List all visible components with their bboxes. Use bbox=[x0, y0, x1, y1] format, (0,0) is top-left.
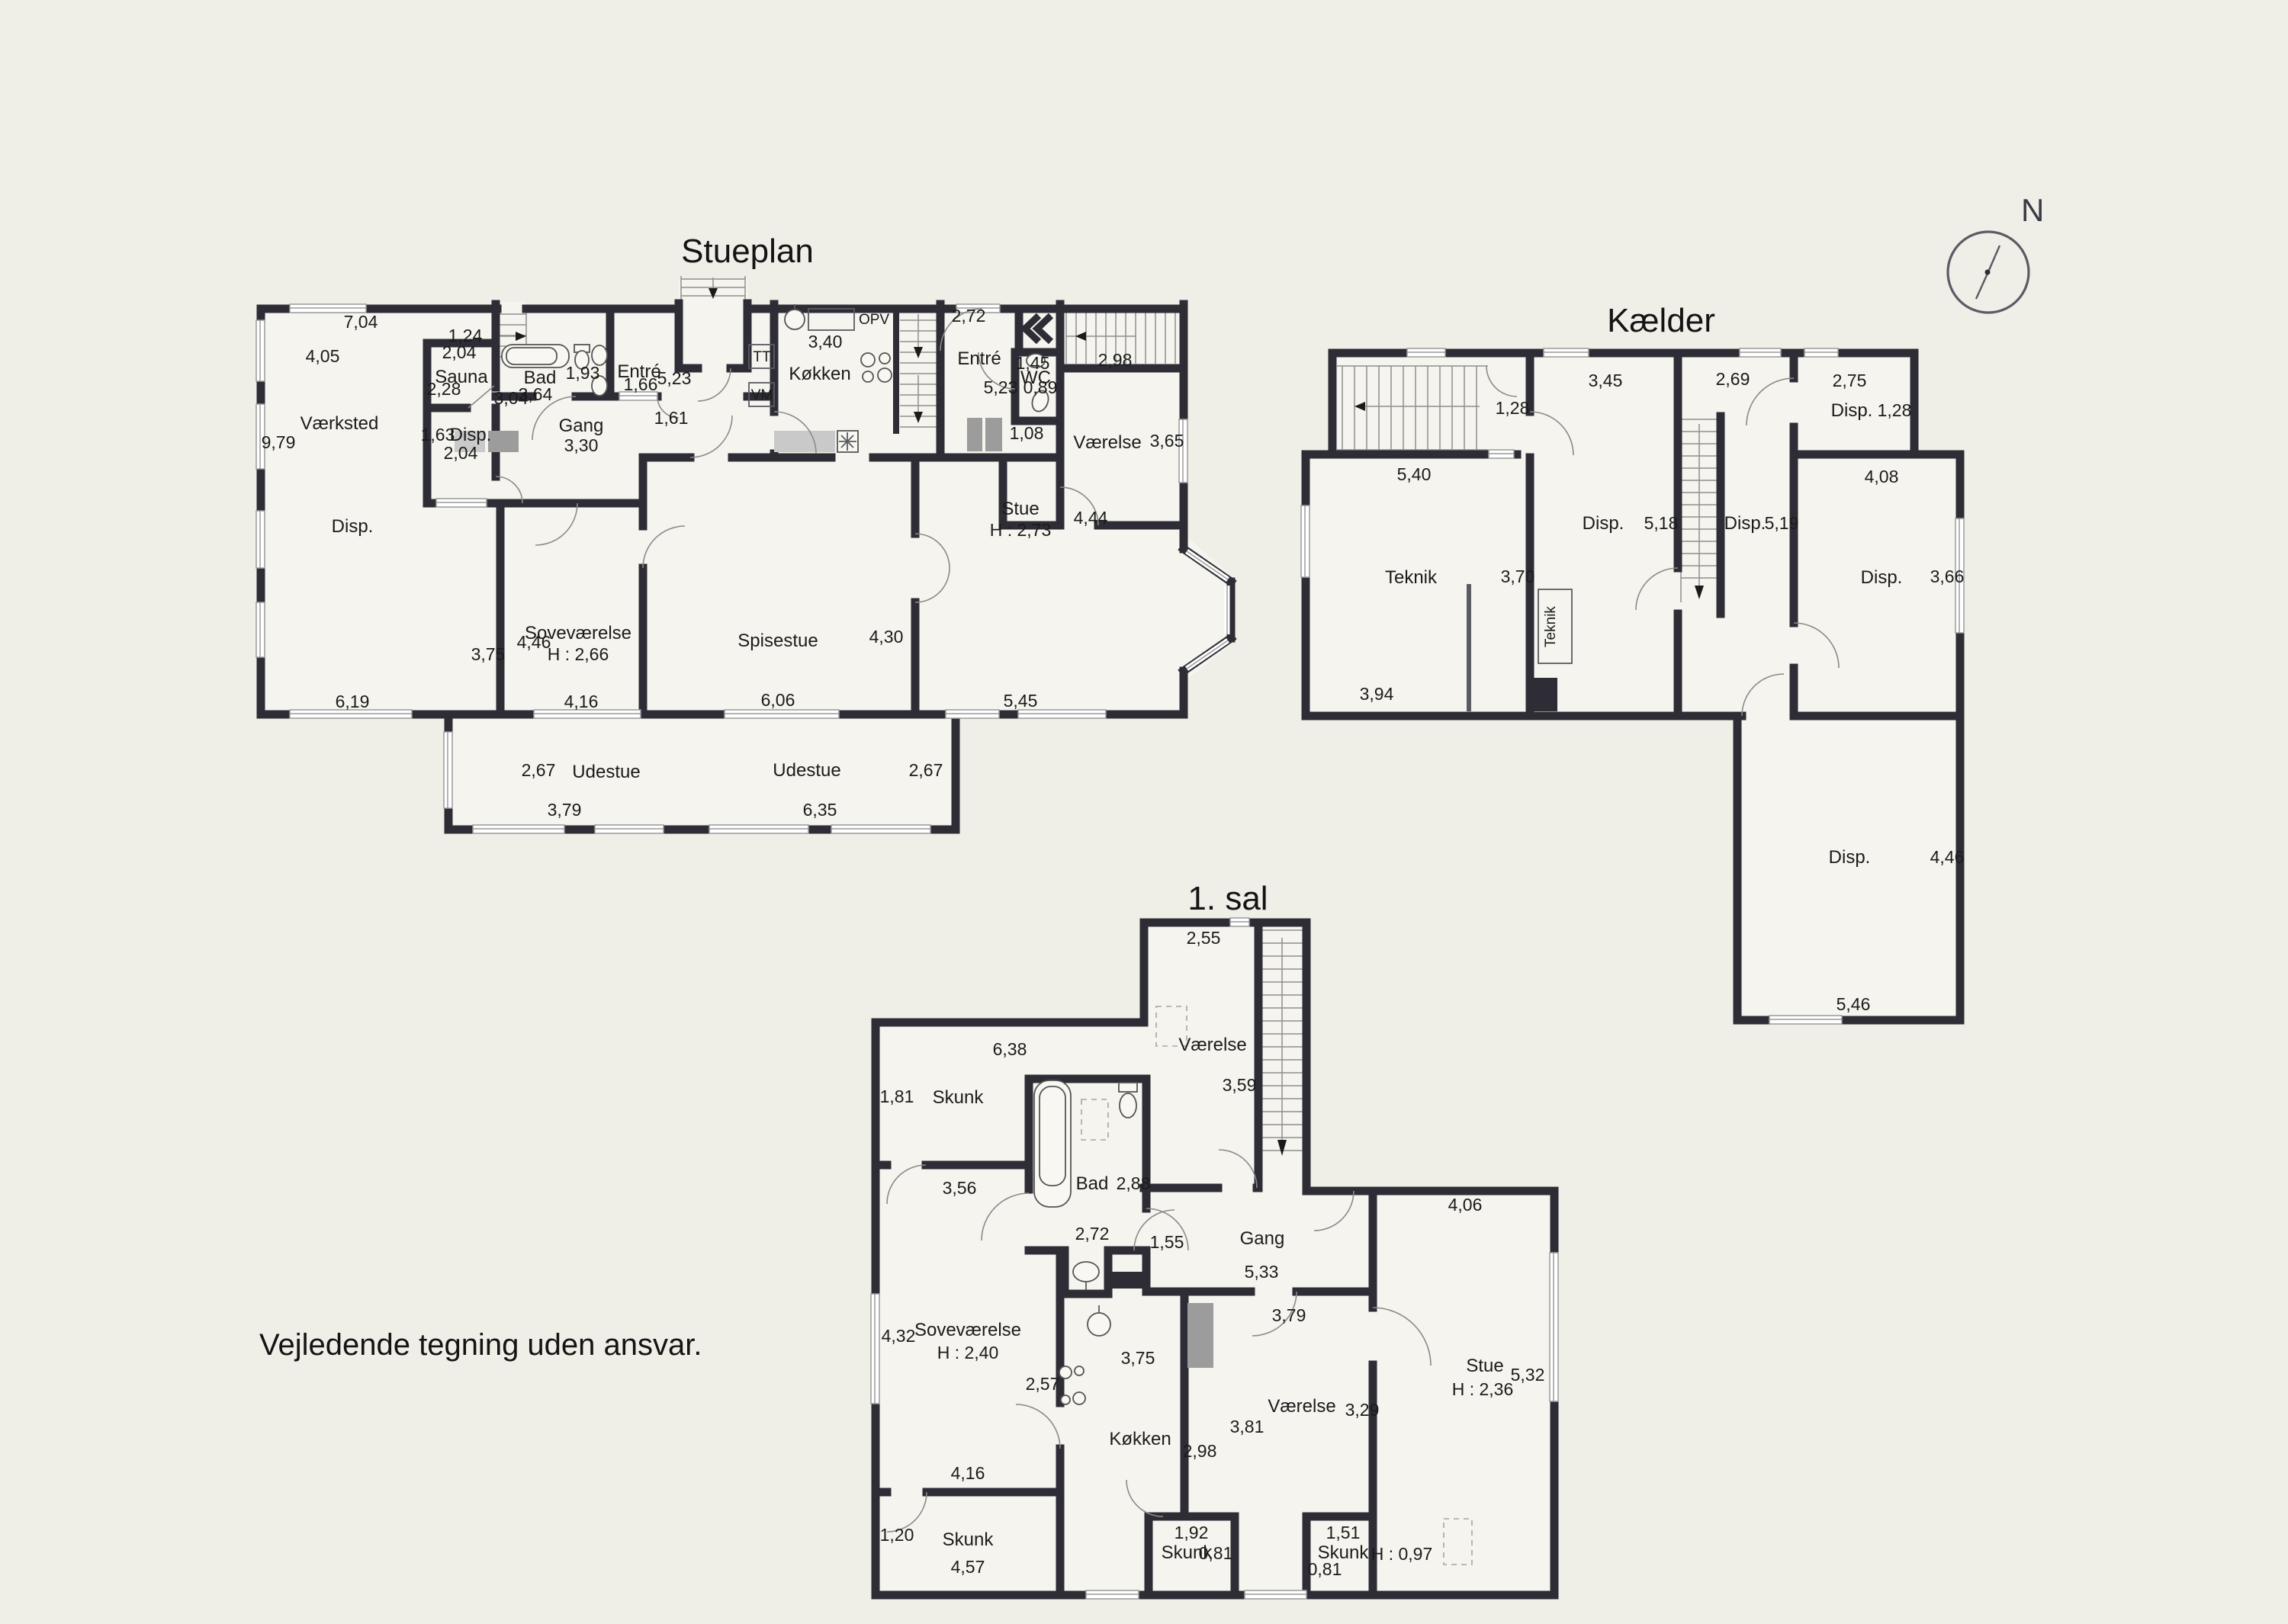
kaelder-teknik-box: Teknik bbox=[1543, 606, 1559, 647]
stueplan-entre-door: 1,61 bbox=[654, 408, 689, 428]
sal-room-skunk2: Skunk bbox=[943, 1529, 995, 1550]
sal-skunk3-w: 1,92 bbox=[1175, 1523, 1209, 1542]
stueplan-stue-h: H : 2,73 bbox=[990, 520, 1052, 540]
stueplan-wc-n: 1,08 bbox=[1010, 423, 1044, 443]
kaelder-disp2: Disp. bbox=[1724, 513, 1766, 534]
kaelder-disp1-h: 5,18 bbox=[1644, 513, 1679, 533]
disclaimer-text: Vejledende tegning uden ansvar. bbox=[259, 1328, 702, 1362]
kaelder-disp3: Disp. bbox=[1831, 400, 1873, 421]
stueplan-room-stue: Stue bbox=[1001, 499, 1039, 519]
kaelder-room-teknik: Teknik bbox=[1385, 567, 1438, 588]
compass-north-label: N bbox=[2021, 192, 2044, 228]
stueplan-room-spisestue: Spisestue bbox=[737, 631, 818, 651]
sal-stue-low: H : 0,97 bbox=[1371, 1544, 1433, 1564]
sal-sove-w: 4,16 bbox=[951, 1463, 985, 1483]
sal-skunk1-d: 1,81 bbox=[880, 1086, 914, 1106]
sal-skunk1-w: 6,38 bbox=[993, 1039, 1027, 1059]
sal-kokken-w: 2,98 bbox=[1183, 1441, 1217, 1461]
stueplan-wc-d: 5,23 bbox=[984, 377, 1018, 397]
sal-room-bad: Bad bbox=[1076, 1173, 1109, 1194]
stueplan-tt: TT bbox=[753, 349, 771, 365]
sal-stue-w: 4,06 bbox=[1448, 1195, 1483, 1215]
floorplan-page: { "page": { "disclaimer": "Vejledende te… bbox=[0, 0, 2288, 1525]
sal-skunk4-w: 1,51 bbox=[1326, 1523, 1361, 1542]
stueplan-opv: OPV bbox=[859, 312, 889, 328]
sal-skunk4-h: 0,81 bbox=[1308, 1559, 1342, 1579]
stueplan-drawing: 7,04 1,24 4,05 9,79 Værksted Disp. 6,19 … bbox=[244, 267, 1312, 862]
sal-stue-h: 5,32 bbox=[1511, 1365, 1545, 1385]
stueplan-title: Stueplan bbox=[681, 233, 814, 271]
stueplan-sove-d: 4,46 bbox=[517, 632, 551, 652]
stueplan-room-udestue2: Udestue bbox=[773, 760, 840, 781]
sal-skunk2-d: 1,20 bbox=[880, 1525, 914, 1545]
stueplan-room-vaerksted: Værksted bbox=[300, 413, 379, 434]
stueplan-stue-w: 5,45 bbox=[1004, 691, 1038, 711]
kaelder-disp4-h: 3,66 bbox=[1930, 566, 1965, 586]
stueplan-dim-619: 6,19 bbox=[336, 692, 370, 711]
stueplan-entre2-w: 2,72 bbox=[952, 306, 986, 326]
stueplan-ude2-h: 2,67 bbox=[909, 760, 943, 780]
stueplan-ude2-w: 6,35 bbox=[803, 800, 837, 820]
stueplan-disp2-w: 2,04 bbox=[444, 443, 478, 463]
kaelder-disp4-w: 4,08 bbox=[1865, 467, 1899, 486]
sal-sove-k: 2,57 bbox=[1026, 1374, 1060, 1394]
stueplan-sauna-w: 2,04 bbox=[442, 342, 477, 362]
sal-room-sove: Soveværelse bbox=[914, 1320, 1021, 1340]
stueplan-bad-h: 1,93 bbox=[566, 363, 600, 383]
compass-center-dot bbox=[1985, 270, 1991, 275]
stueplan-disp2-name: Disp. bbox=[450, 425, 492, 445]
stueplan-room-vaerelse: Værelse bbox=[1073, 432, 1141, 453]
stueplan-dim-979: 9,79 bbox=[262, 432, 296, 452]
stueplan-entre-w: 5,23 bbox=[657, 368, 692, 388]
sal-kokken-d: 3,75 bbox=[1121, 1348, 1155, 1368]
sal-gang-door: 1,55 bbox=[1150, 1232, 1184, 1252]
sal-sove-h: H : 2,40 bbox=[937, 1343, 999, 1362]
sal-vaer2-w: 3,81 bbox=[1230, 1417, 1265, 1436]
kaelder-stair-l: 5,40 bbox=[1397, 464, 1432, 484]
stueplan-room-udestue1: Udestue bbox=[572, 762, 640, 782]
stueplan-ude1-h: 2,67 bbox=[522, 760, 556, 780]
sal-drawing: 2,55 Værelse 3,59 1,81 Skunk 6,38 3,56 B… bbox=[839, 907, 1609, 1624]
stueplan-sove-h: H : 2,66 bbox=[548, 644, 609, 664]
sal-sove-d: 4,32 bbox=[882, 1326, 916, 1346]
stueplan-sove-w: 4,16 bbox=[564, 692, 599, 711]
stueplan-vaer-w: 2,98 bbox=[1098, 350, 1133, 370]
sal-stue-hh: H : 2,36 bbox=[1452, 1379, 1514, 1399]
sal-skunk2-w: 4,57 bbox=[951, 1557, 985, 1577]
kaelder-disp3-d: 1,28 bbox=[1878, 400, 1912, 420]
sal-skunk3-h: 0,81 bbox=[1199, 1543, 1233, 1563]
kaelder-disp1-w: 3,45 bbox=[1589, 371, 1623, 390]
sal-vaer1-w: 2,55 bbox=[1187, 928, 1221, 948]
sal-room-skunk1: Skunk bbox=[933, 1087, 985, 1108]
sal-room-gang: Gang bbox=[1240, 1228, 1285, 1249]
stueplan-room-kokken: Køkken bbox=[789, 364, 850, 384]
sal-vaer2-h: 3,29 bbox=[1345, 1400, 1380, 1420]
kaelder-disp5-h: 4,46 bbox=[1930, 847, 1965, 867]
stueplan-dim-405: 4,05 bbox=[306, 346, 340, 366]
stueplan-sauna-h: 2,28 bbox=[427, 379, 461, 399]
sal-room-vaerelse2: Værelse bbox=[1268, 1396, 1335, 1417]
stueplan-spise-d: 4,30 bbox=[869, 627, 904, 647]
kaelder-disp3-w: 2,75 bbox=[1833, 371, 1867, 390]
stueplan-vaer-h: 3,65 bbox=[1150, 431, 1184, 451]
kaelder-disp2-h: 5,19 bbox=[1765, 513, 1799, 533]
stueplan-stue-d: 4,44 bbox=[1074, 508, 1108, 528]
stueplan-dim-704: 7,04 bbox=[344, 312, 378, 332]
stueplan-room-gang: Gang bbox=[559, 416, 604, 436]
stueplan-spise-w: 6,06 bbox=[761, 690, 795, 710]
kaelder-disp5-w: 5,46 bbox=[1837, 994, 1871, 1014]
kaelder-disp5: Disp. bbox=[1829, 847, 1871, 868]
stueplan-bad-w: 3,64 bbox=[519, 384, 553, 404]
kaelder-disp2-w: 2,69 bbox=[1716, 369, 1750, 389]
kaelder-disp4: Disp. bbox=[1861, 567, 1903, 588]
stueplan-entre-win: 1,66 bbox=[624, 374, 658, 394]
stueplan-sove-d2: 3,75 bbox=[471, 644, 506, 664]
stueplan-wc-s: 0,89 bbox=[1023, 377, 1058, 397]
stueplan-gang-w: 3,30 bbox=[564, 435, 599, 455]
sal-room-stue: Stue bbox=[1466, 1356, 1503, 1376]
sal-room-kokken: Køkken bbox=[1109, 1429, 1171, 1449]
kaelder-stair-w: 1,28 bbox=[1496, 398, 1530, 418]
compass-rose: N bbox=[1922, 183, 2074, 335]
sal-bad-sink: 2,72 bbox=[1075, 1224, 1110, 1244]
sal-gang-w: 5,33 bbox=[1245, 1262, 1279, 1282]
stueplan-ude1-w: 3,79 bbox=[548, 800, 582, 820]
kaelder-teknik-w: 3,70 bbox=[1501, 566, 1535, 586]
sal-room-vaerelse1: Værelse bbox=[1178, 1035, 1246, 1055]
stueplan-kokken-w: 3,40 bbox=[808, 332, 843, 351]
sal-skunk1-door: 3,56 bbox=[943, 1178, 977, 1198]
stueplan-vm: VM bbox=[751, 387, 773, 403]
sal-bad-w: 2,88 bbox=[1117, 1173, 1151, 1193]
sal-vaer1-h: 3,59 bbox=[1223, 1075, 1257, 1095]
kaelder-disp1: Disp. bbox=[1583, 513, 1624, 534]
kaelder-teknik-l: 3,94 bbox=[1360, 684, 1394, 704]
stueplan-room-disp-big: Disp. bbox=[332, 516, 374, 537]
sal-gang-d: 3,79 bbox=[1272, 1305, 1306, 1325]
stueplan-room-entre2: Entré bbox=[957, 348, 1001, 369]
